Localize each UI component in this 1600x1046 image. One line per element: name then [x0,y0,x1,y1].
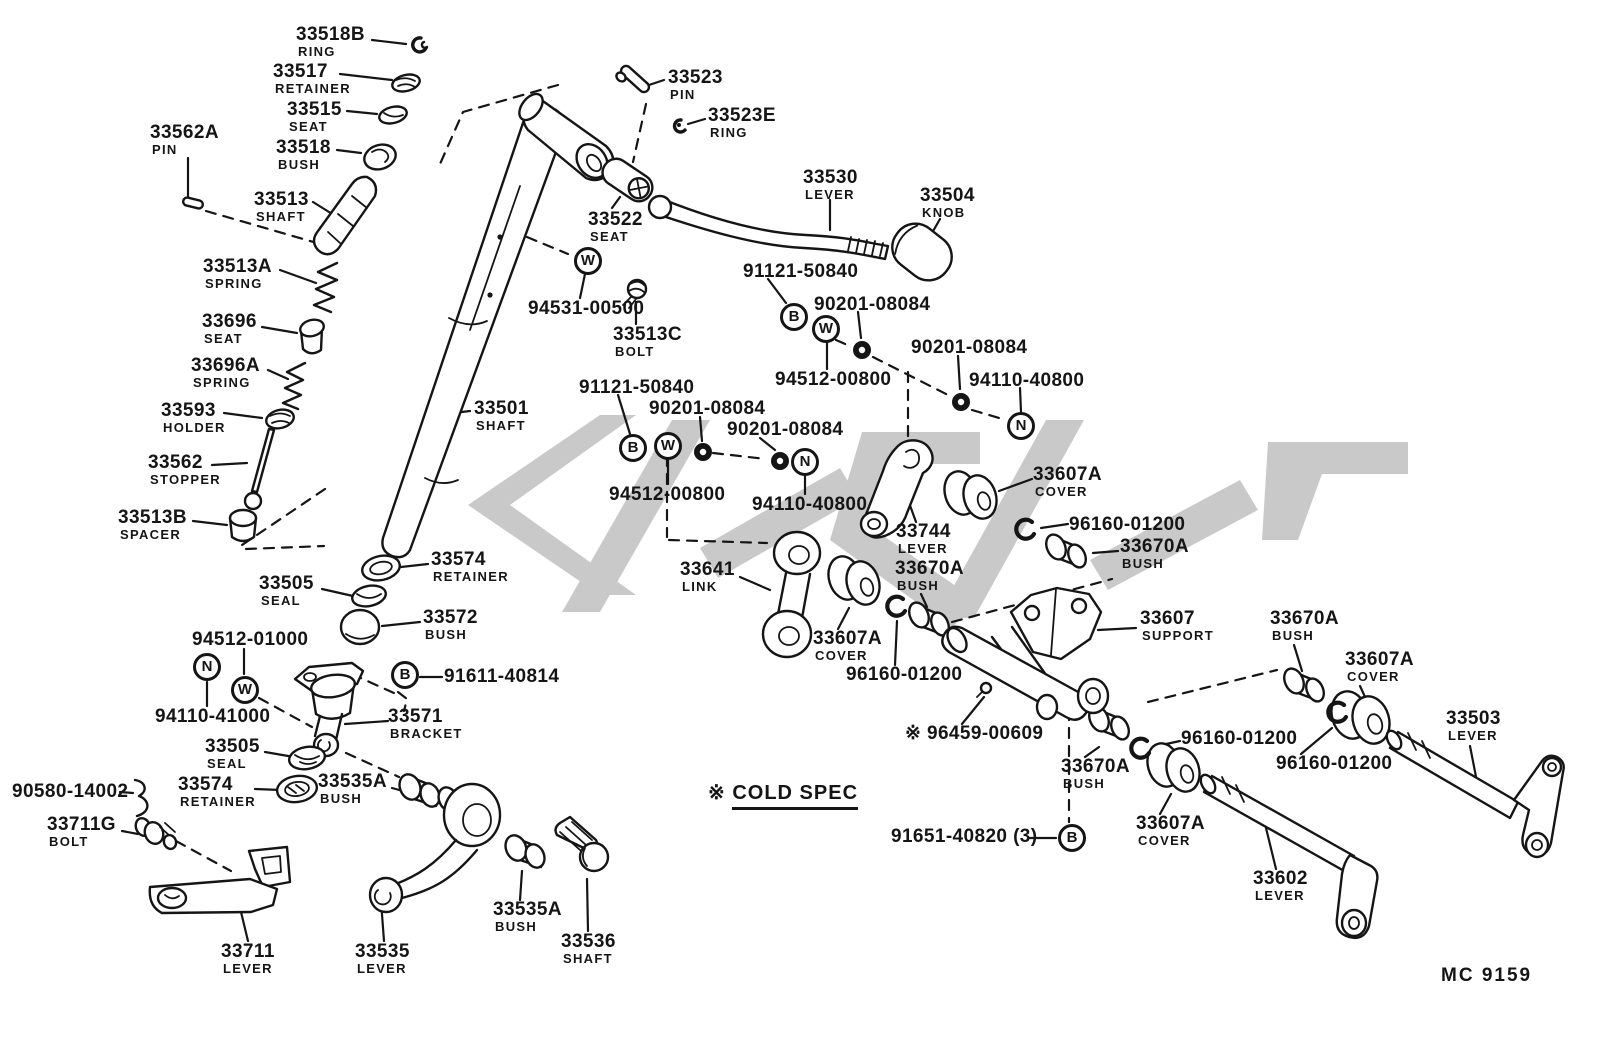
part-label-33535: 33535LEVER [355,943,410,975]
part-label-90201-08084-b: 90201-08084 [911,339,1027,359]
part-seal-33505-lower [287,744,326,772]
part-label-33572: 33572BUSH [423,609,478,641]
part-label-33513B: 33513BSPACER [118,509,187,541]
part-label-33641: 33641LINK [680,561,735,593]
part-label-33607: 33607SUPPORT [1140,610,1214,642]
part-label-33711: 33711LEVER [221,943,275,975]
part-label-94512-01000: 94512-01000 [192,631,308,651]
part-ring-33518B [413,38,427,52]
part-retainer-33574-lower [275,773,318,804]
circled-letter-N: N [1007,412,1035,440]
part-label-94110-40800-b: 94110-40800 [752,496,867,516]
circled-letter-B: B [1058,824,1086,852]
cold-spec-note: ※ COLD SPEC [708,780,858,805]
part-label-33518B: 33518BRING [296,26,365,58]
part-label-96160-b: 96160-01200 [846,666,962,686]
part-label-94531-00500: 94531-00500 [528,300,644,320]
part-seat-33515 [377,104,408,126]
part-label-33607A-b: 33607ACOVER [813,630,882,662]
part-spacer-33513B [230,510,256,541]
part-label-33696: 33696SEAT [202,313,257,345]
part-label-33513C: 33513CBOLT [613,326,682,358]
part-knob-33504 [883,215,960,289]
part-stopper-33562 [245,429,274,509]
part-lever-33602 [1198,772,1378,938]
part-label-96160-c: 96160-01200 [1181,730,1297,750]
part-label-90201-08084-a: 90201-08084 [814,296,930,316]
part-label-96160-a: 96160-01200 [1069,516,1185,536]
part-pin-33562A [182,197,203,210]
part-seat-33696 [298,317,325,353]
part-holder-33593 [264,407,296,431]
part-label-33523: 33523PIN [668,69,723,101]
part-link-33641 [763,532,820,657]
part-label-33670A-d: 33670ABUSH [1061,758,1130,790]
part-bolt-33711G [133,816,178,850]
part-spring-33696A [283,363,305,409]
part-label-33501: 33501SHAFT [474,400,529,432]
part-label-33522: 33522SEAT [588,211,643,243]
part-label-33574-upper: 33574RETAINER [431,551,509,583]
circled-letter-B: B [619,434,647,462]
part-label-33518: 33518BUSH [276,139,331,171]
part-label-91121-50840-a: 91121-50840 [743,263,858,283]
part-label-33505-lower: 33505SEAL [205,738,260,770]
part-label-91611-40814: 91611-40814 [444,668,559,688]
part-label-33505-upper: 33505SEAL [259,575,314,607]
parts-diagram-page: 33518BRING 33517RETAINER 33515SEAT 33518… [0,0,1600,1046]
part-seal-33505-upper [350,583,387,610]
circled-letter-W: W [654,432,682,460]
part-lever-33503 [1384,728,1564,857]
part-label-33696A: 33696ASPRING [191,357,260,389]
part-plug-96459 [977,683,991,697]
part-label-90201-08084-c: 90201-08084 [649,400,765,420]
circled-letter-W: W [231,676,259,704]
part-label-33535A-a: 33535ABUSH [318,773,387,805]
part-label-91121-50840-b: 91121-50840 [579,379,694,399]
part-bush-33518 [361,141,399,174]
part-label-94512-00800-b: 94512-00800 [609,486,725,506]
exploded-view-drawing [0,0,1600,1046]
part-seat-33522 [598,154,658,207]
circled-letter-N: N [791,448,819,476]
part-label-33593: 33593HOLDER [161,402,226,434]
part-label-90201-08084-d: 90201-08084 [727,421,843,441]
part-label-33602: 33602LEVER [1253,870,1308,902]
part-label-33517: 33517RETAINER [273,63,351,95]
part-label-96160-d: 96160-01200 [1276,755,1392,775]
circled-letter-N: N [193,653,221,681]
part-label-33607A-a: 33607ACOVER [1033,466,1102,498]
part-pin-33523 [615,64,651,94]
part-shaft-33536 [556,817,608,871]
part-label-33513A: 33513ASPRING [203,258,272,290]
part-label-33504: 33504KNOB [920,187,975,219]
part-label-33515: 33515SEAT [287,101,342,133]
part-label-33670A-c: 33670ABUSH [1270,610,1339,642]
part-clamp-90580 [135,780,147,816]
part-ring-33523E [675,120,685,132]
part-label-33513: 33513SHAFT [254,191,309,223]
part-label-94512-00800-a: 94512-00800 [775,371,891,391]
part-label-33562: 33562STOPPER [148,454,221,486]
part-spring-33513A [314,263,337,312]
part-label-33571: 33571BRACKET [388,708,463,740]
part-label-90580-14002: 90580-14002 [12,783,128,803]
part-label-96459-00609: ※ 96459-00609 [905,725,1043,745]
part-label-94110-41000: 94110-41000 [155,708,270,728]
part-label-33574-lower: 33574RETAINER [178,776,256,808]
part-label-33503: 33503LEVER [1446,710,1501,742]
part-shaft-33513 [314,177,376,254]
circled-letter-B: B [780,303,808,331]
part-label-33536: 33536SHAFT [561,933,616,965]
circled-letter-W: W [574,247,602,275]
circled-letter-W: W [812,315,840,343]
part-label-33744: 33744LEVER [896,523,951,555]
part-label-94110-40800-a: 94110-40800 [969,372,1084,392]
part-label-33530: 33530LEVER [803,169,858,201]
part-label-33607A-d: 33607ACOVER [1136,815,1205,847]
part-label-33670A-a: 33670ABUSH [1120,538,1189,570]
part-retainer-33517 [390,72,421,94]
part-bush-33572 [341,610,379,644]
part-label-33711G: 33711GBOLT [47,816,116,848]
part-label-33670A-b: 33670ABUSH [895,560,964,592]
part-label-33535A-b: 33535ABUSH [493,901,562,933]
part-label-33523E: 33523ERING [708,107,776,139]
part-label-33607A-c: 33607ACOVER [1345,651,1414,683]
circled-letter-B: B [391,661,419,689]
drawing-code: MC 9159 [1441,965,1532,987]
part-bracket-33571 [295,663,363,756]
part-lever-33711 [150,847,290,913]
part-label-91651-40820: 91651-40820 (3) [891,828,1038,848]
part-label-33562A: 33562APIN [150,124,219,156]
part-lever-33530 [649,196,888,259]
